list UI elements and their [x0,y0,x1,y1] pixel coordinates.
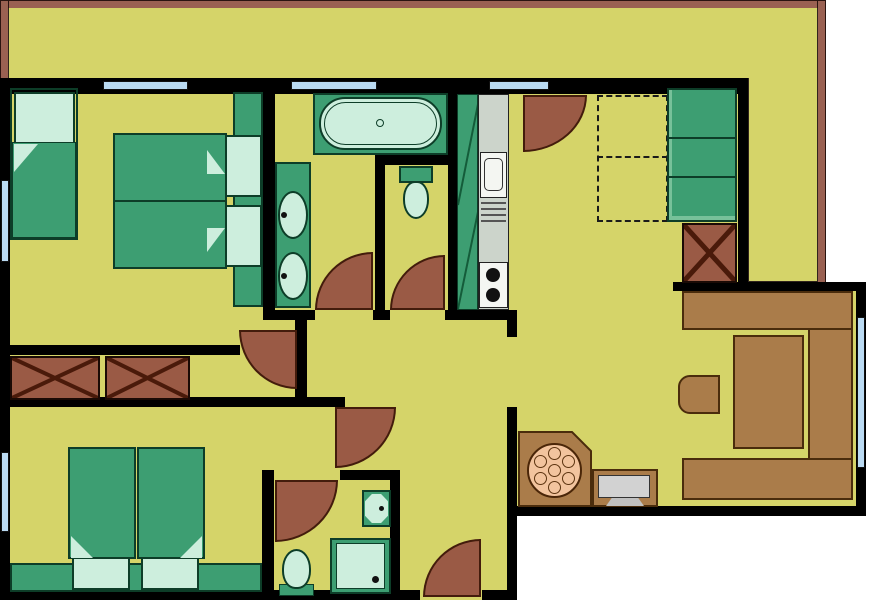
twin-bed-pillow-left [72,554,130,590]
terrace-floor-top [8,8,818,79]
terrace-floor-right [748,78,818,282]
cabinet-bevel-lines [458,95,478,310]
faucet-dot [379,506,384,511]
wall-living-bottom [508,506,866,516]
kitchen-base-cabinet [457,94,478,310]
headboard-panel-bedroom2 [10,563,262,592]
faucet-dot [281,212,287,218]
wall-bedroom1-right [263,78,275,310]
stool [678,375,720,414]
burner [486,268,500,282]
twin-bed-pillow-right [141,554,199,590]
burner [486,288,500,302]
dining-seat [548,464,561,477]
window-bedroom2-left [1,452,9,532]
sofa-top-arm [682,291,853,330]
wall-bath2-right [390,470,400,600]
window-terrace-door [489,81,549,90]
closet-x-mark [107,358,188,398]
shaft-x-mark [684,225,735,281]
tv-base [606,498,644,506]
twin-bed-blanket-left [68,447,136,559]
small-basin [365,494,388,523]
closet-x-mark [12,358,98,398]
tall-cabinet [667,88,737,222]
coffee-table [733,335,804,449]
twin-bed-blanket-right [137,447,205,559]
wall-right-upper [738,78,748,282]
wall-bath1-bottom-a [263,310,315,320]
toilet-bowl-wc [403,181,429,219]
drainer-hatch [481,202,506,226]
headboard-panel-bedroom1 [233,92,263,307]
shower-drain [372,576,379,583]
cabinet-shelf-line [669,176,735,178]
window-bathroom-top [291,81,377,90]
dining-seat [562,472,575,485]
floor-plan-canvas [0,0,870,600]
wall-living-top [673,282,866,291]
dashed-unit-divider [597,156,668,158]
wall-wc-top [375,155,448,165]
dining-seat [534,455,547,468]
wall-corridor-right-lower [507,407,517,600]
sofa-bottom-arm [682,458,853,500]
hall-closet-1 [10,356,100,400]
faucet-dot [281,273,287,279]
terrace-railing-right [817,0,826,290]
wall-bedroom1-bottom [0,345,240,355]
wall-bath1-bottom-b [373,310,390,320]
kitchen-sink-basin [484,158,503,191]
dining-seat [548,447,561,460]
toilet-bowl-ensuite [282,549,311,589]
bathtub-drain [376,119,384,127]
shaft-box [682,223,737,283]
wall-kitchen-left [448,94,457,315]
tv-screen [598,475,650,498]
hall-closet-2 [105,356,190,400]
sofa-right-arm [808,328,853,460]
window-bedroom1-left [1,180,9,262]
wall-bedroom2-right [262,470,274,600]
dining-seat [534,472,547,485]
dining-seat [548,481,561,494]
window-living-right [857,317,865,468]
dining-seat [562,455,575,468]
cabinet-shelf-line [669,137,735,139]
wall-corridor-right-upper [507,315,517,337]
wall-wc-left [375,155,385,310]
dashed-overhead-unit [597,95,668,222]
window-bedroom1-top [103,81,188,90]
